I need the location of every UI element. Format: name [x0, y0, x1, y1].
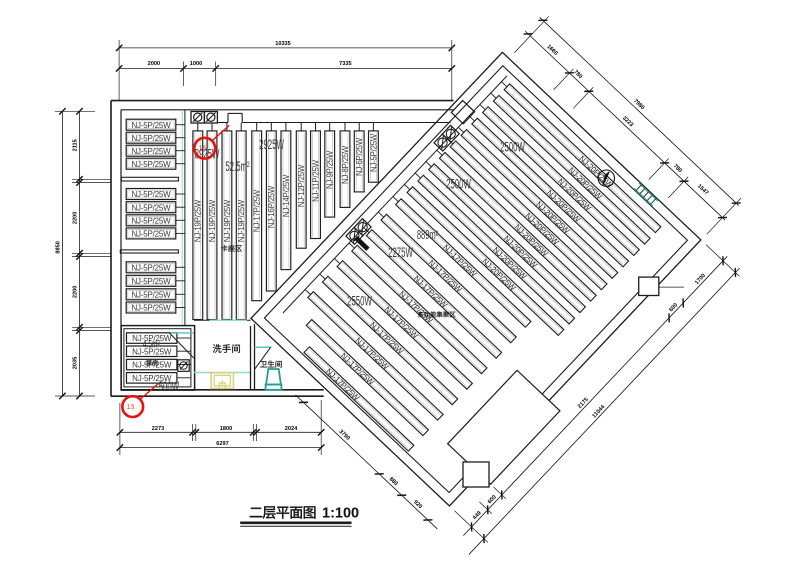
svg-text:NJ-19P/25W: NJ-19P/25W	[208, 199, 217, 242]
svg-text:NJ-5P/25W: NJ-5P/25W	[131, 203, 171, 212]
svg-text:1.5: 1.5	[127, 403, 135, 411]
svg-text:500W: 500W	[159, 380, 180, 395]
svg-text:1000: 1000	[190, 61, 202, 67]
svg-text:NJ-5P/25W: NJ-5P/25W	[131, 190, 171, 199]
svg-text:1:100: 1:100	[322, 506, 359, 522]
svg-text:2035: 2035	[73, 357, 79, 369]
svg-text:NJ-12P/25W: NJ-12P/25W	[297, 164, 306, 207]
svg-text:NJ-5P/25W: NJ-5P/25W	[131, 121, 171, 130]
svg-text:1800: 1800	[220, 426, 232, 432]
svg-text:NJ-19P/25W: NJ-19P/25W	[237, 199, 246, 242]
svg-text:NJ-17P/25W: NJ-17P/25W	[253, 189, 262, 232]
svg-text:2275W: 2275W	[388, 246, 413, 261]
svg-text:NJ-5P/25W: NJ-5P/25W	[369, 133, 378, 172]
svg-text:NJ-5P/25W: NJ-5P/25W	[131, 277, 171, 286]
svg-text:2500W: 2500W	[500, 140, 525, 155]
svg-text:889m²: 889m²	[417, 228, 439, 243]
svg-text:NJ-8P/25W: NJ-8P/25W	[341, 145, 350, 184]
svg-text:NJ-9P/25W: NJ-9P/25W	[326, 150, 335, 189]
svg-text:2500W: 2500W	[446, 177, 471, 192]
svg-text:NJ-5P/25W: NJ-5P/25W	[131, 304, 171, 313]
svg-text:2000: 2000	[148, 61, 160, 67]
svg-text:NJ-5P/25W: NJ-5P/25W	[132, 361, 172, 370]
svg-text:NJ-5P/25W: NJ-5P/25W	[131, 147, 171, 156]
svg-text:8850: 8850	[56, 241, 62, 253]
svg-text:2273: 2273	[152, 426, 164, 432]
svg-text:NJ-5P/25W: NJ-5P/25W	[131, 160, 171, 169]
svg-text:1.5: 1.5	[199, 145, 207, 153]
svg-text:NJ-19P/25W: NJ-19P/25W	[194, 199, 203, 242]
svg-text:NJ-19P/25W: NJ-19P/25W	[223, 199, 232, 242]
svg-text:NJ-5P/25W: NJ-5P/25W	[131, 216, 171, 225]
svg-text:10335: 10335	[275, 41, 291, 47]
svg-text:NJ-5P/25W: NJ-5P/25W	[131, 134, 171, 143]
svg-text:NJ-5P/25W: NJ-5P/25W	[131, 263, 171, 272]
svg-text:NJ-16P/25W: NJ-16P/25W	[267, 185, 276, 228]
svg-text:2200: 2200	[73, 212, 79, 224]
svg-text:NJ-11P/25W: NJ-11P/25W	[311, 159, 320, 201]
svg-text:2550W: 2550W	[347, 295, 372, 310]
svg-text:7335: 7335	[339, 61, 351, 67]
svg-text:NJ-5P/25W: NJ-5P/25W	[131, 230, 171, 239]
svg-text:2200: 2200	[73, 286, 79, 298]
svg-text:2024: 2024	[285, 426, 298, 432]
svg-text:2115: 2115	[73, 139, 79, 151]
svg-text:4.5m²: 4.5m²	[143, 338, 160, 350]
svg-text:NJ-14P/25W: NJ-14P/25W	[282, 174, 291, 217]
svg-text:NJ-5P/25W: NJ-5P/25W	[131, 290, 171, 299]
svg-text:NJ-6P/25W: NJ-6P/25W	[355, 137, 364, 176]
svg-text:6297: 6297	[216, 441, 228, 447]
svg-text:52.5m²: 52.5m²	[225, 160, 250, 175]
svg-text:2925W: 2925W	[259, 138, 284, 153]
